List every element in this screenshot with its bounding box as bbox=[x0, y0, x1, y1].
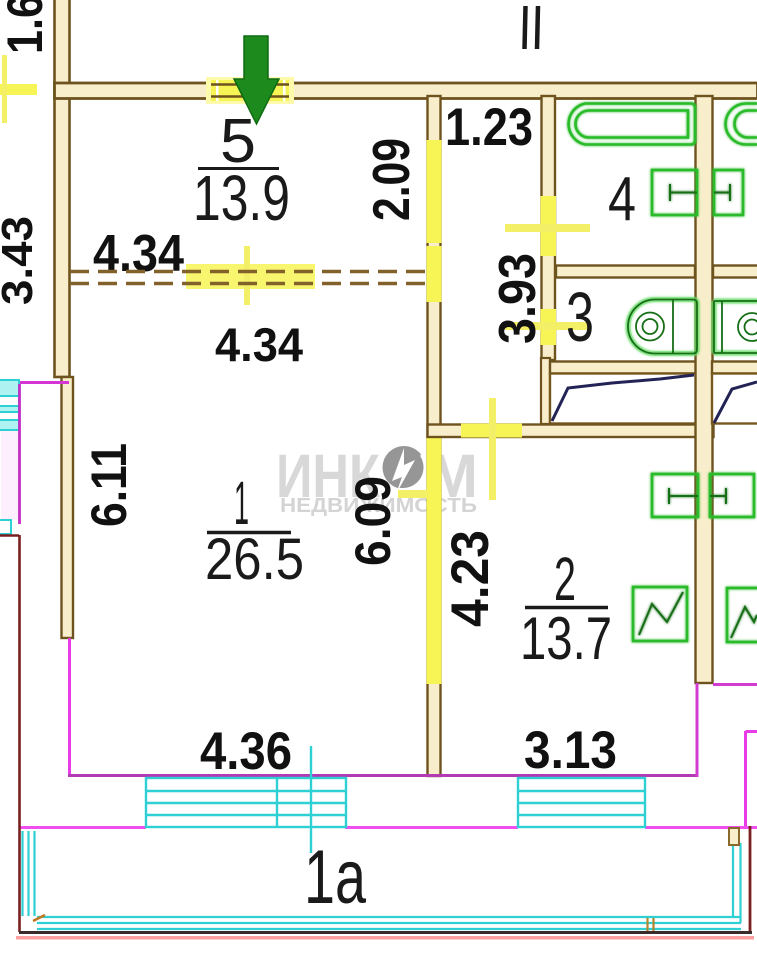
svg-text:6.11: 6.11 bbox=[81, 443, 137, 527]
svg-text:1.23: 1.23 bbox=[445, 98, 533, 157]
svg-text:2: 2 bbox=[554, 545, 576, 613]
svg-text:4.34: 4.34 bbox=[215, 318, 303, 371]
svg-text:6.09: 6.09 bbox=[345, 476, 401, 566]
svg-text:3.93: 3.93 bbox=[489, 253, 547, 344]
svg-text:3: 3 bbox=[566, 278, 594, 356]
svg-text:2.09: 2.09 bbox=[363, 138, 421, 221]
svg-text:1а: 1а bbox=[304, 835, 367, 920]
svg-text:3.13: 3.13 bbox=[524, 721, 617, 780]
svg-text:13.9: 13.9 bbox=[193, 162, 290, 234]
svg-text:1.6: 1.6 bbox=[0, 0, 53, 54]
svg-text:26.5: 26.5 bbox=[205, 527, 304, 592]
svg-text:4: 4 bbox=[608, 165, 636, 234]
svg-text:13.7: 13.7 bbox=[520, 605, 612, 672]
svg-text:4.34: 4.34 bbox=[93, 225, 184, 283]
svg-text:4.23: 4.23 bbox=[441, 530, 500, 627]
svg-text:4.36: 4.36 bbox=[200, 722, 292, 781]
svg-text:3.43: 3.43 bbox=[0, 216, 42, 305]
